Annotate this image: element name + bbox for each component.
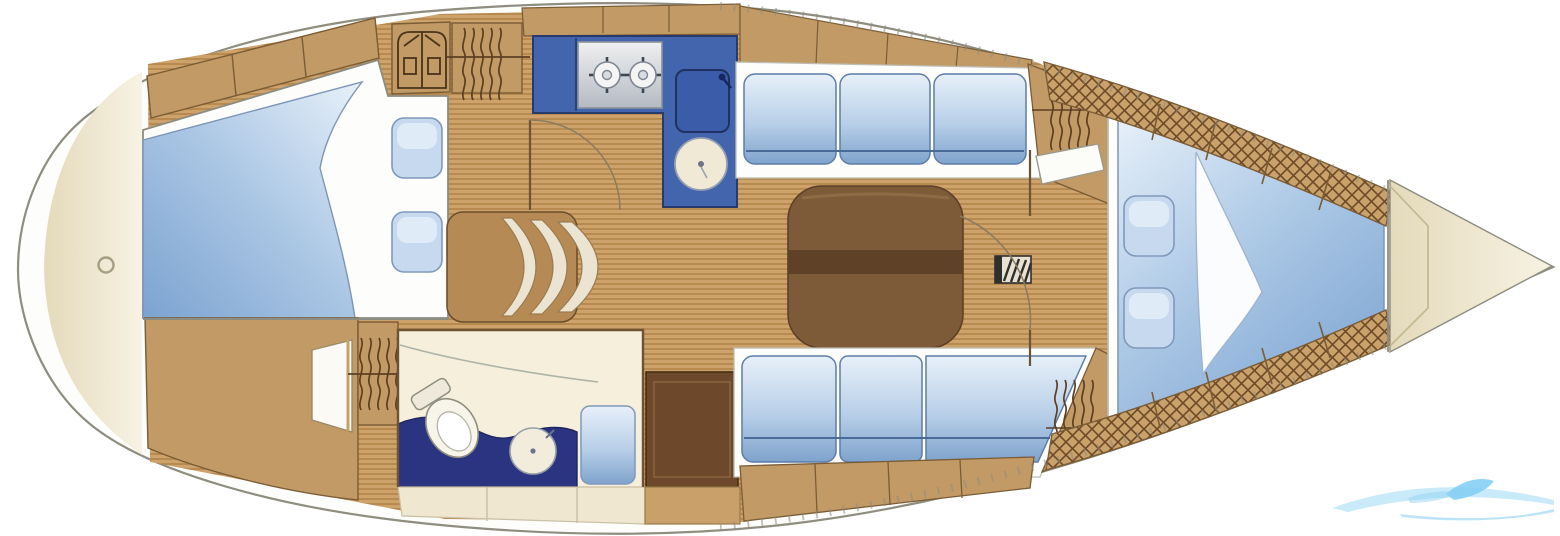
aft-pillow-1 (392, 118, 442, 178)
galley-sink-drain (698, 161, 704, 167)
floor-plan-canvas (0, 0, 1560, 536)
anchor-locker (1388, 180, 1552, 352)
under-cabinet-panel (645, 487, 740, 524)
shower-seat (581, 406, 635, 484)
yacht-floor-plan (0, 0, 1560, 536)
starboard-settee-lockers (740, 457, 1034, 521)
wet-locker-cabinet (646, 372, 738, 487)
starboard-settee-cushion-1 (742, 356, 836, 462)
head-basin-drain (530, 448, 535, 453)
anchor-locker-area (1390, 180, 1552, 352)
fwd-pillow-2 (1124, 288, 1174, 348)
lazarette-area (44, 72, 142, 455)
aft-pillow-2 (392, 212, 442, 272)
wave-swoosh-watermark (1332, 479, 1554, 520)
watermark-swoosh-main (1332, 487, 1554, 512)
fwd-pillow-1 (1124, 196, 1174, 256)
watermark-swoosh-tail (1400, 509, 1554, 520)
starboard-settee-cushion-2 (840, 356, 922, 462)
table-fold-band (788, 250, 963, 274)
aft-cabin-door (312, 340, 352, 432)
nav-seat (447, 212, 598, 322)
shelf-locker-cell (452, 23, 522, 93)
saloon-table (788, 186, 963, 348)
stern-lazarette (44, 72, 142, 455)
galley-top-strip (522, 4, 740, 36)
